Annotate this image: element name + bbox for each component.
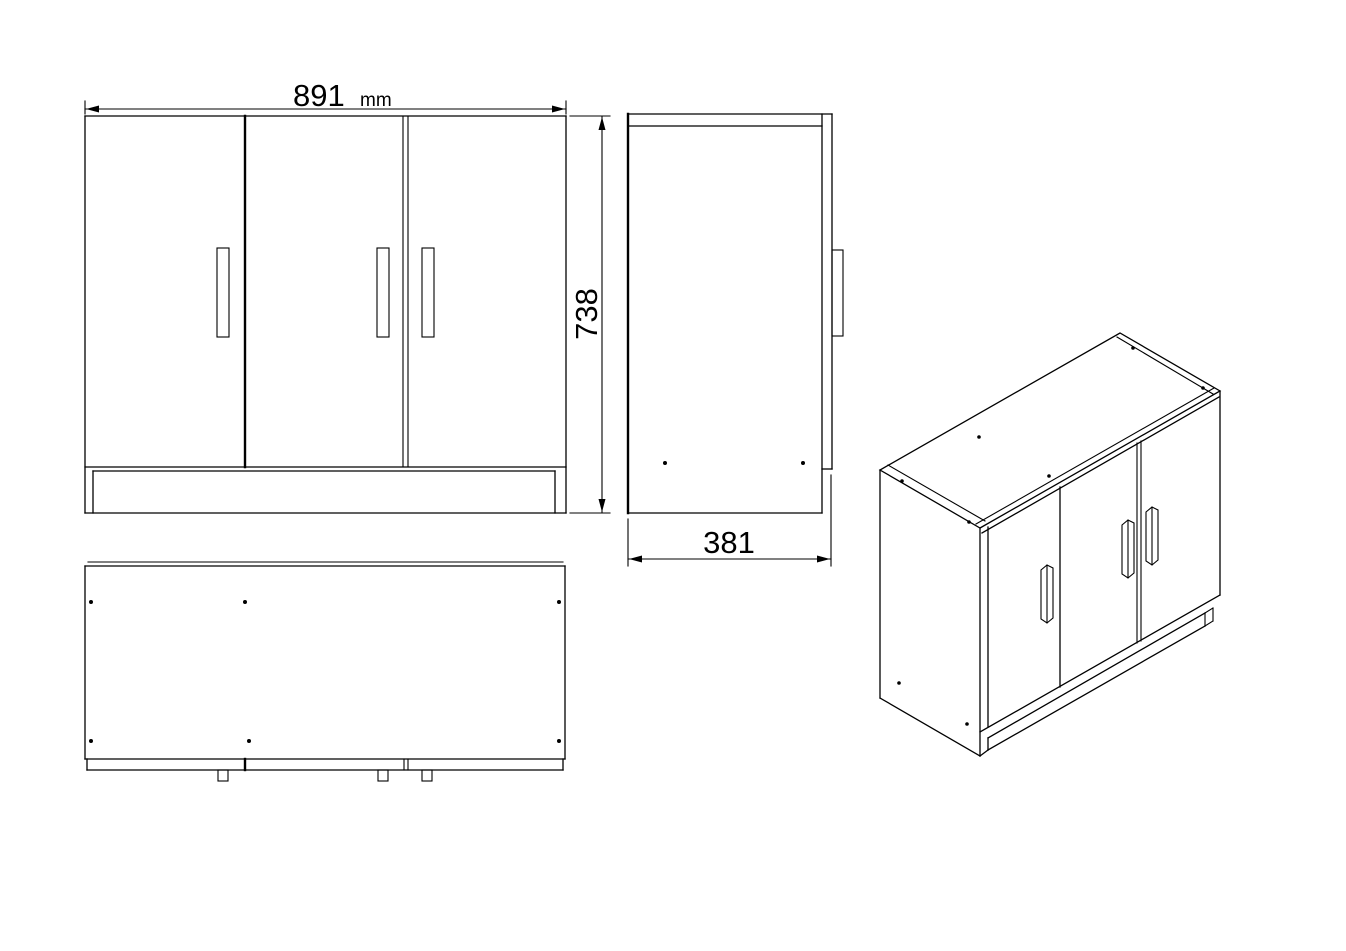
- front-plinth: [93, 471, 555, 513]
- side-door-edge: [822, 114, 832, 469]
- iso-left-side-face: [880, 470, 980, 756]
- side-view: 381: [628, 114, 843, 566]
- iso-top-face: [880, 333, 1220, 528]
- side-fitting-dot: [663, 461, 667, 465]
- front-door3-handle: [422, 248, 434, 337]
- bottom-view: [85, 562, 565, 781]
- iso-door2-handle: [1122, 520, 1134, 578]
- side-outline: [628, 114, 832, 513]
- iso-front-doors: [980, 391, 1220, 732]
- isometric-view: [880, 333, 1220, 756]
- front-view: 891 mm 738: [85, 78, 610, 513]
- technical-drawing-sheet: 891 mm 738: [0, 0, 1346, 951]
- iso-fitting-dots: [897, 346, 1205, 726]
- bottom-door1-handle: [218, 770, 228, 781]
- bottom-door3-handle: [422, 770, 432, 781]
- bottom-door-strip: [87, 759, 563, 770]
- bottom-fitting-dots: [89, 600, 561, 743]
- iso-door3-handle: [1146, 507, 1158, 565]
- width-dimension: 891 mm: [85, 78, 566, 114]
- width-dimension-value: 891: [293, 78, 345, 113]
- bottom-door2-handle: [378, 770, 388, 781]
- height-dimension-value: 738: [569, 288, 604, 340]
- iso-plinth: [980, 608, 1213, 756]
- depth-dimension: 381: [628, 475, 831, 566]
- height-dimension: 738: [569, 116, 610, 513]
- front-door1-handle: [217, 248, 229, 337]
- depth-dimension-value: 381: [703, 525, 755, 560]
- side-fitting-dot: [801, 461, 805, 465]
- front-door2-handle: [377, 248, 389, 337]
- bottom-panel-outline: [85, 566, 565, 759]
- iso-door1-handle: [1041, 565, 1053, 623]
- width-dimension-unit: mm: [360, 90, 392, 111]
- side-door-handle: [832, 250, 843, 336]
- front-carcass-outline: [85, 116, 566, 513]
- drawing-svg: 891 mm 738: [0, 0, 1346, 951]
